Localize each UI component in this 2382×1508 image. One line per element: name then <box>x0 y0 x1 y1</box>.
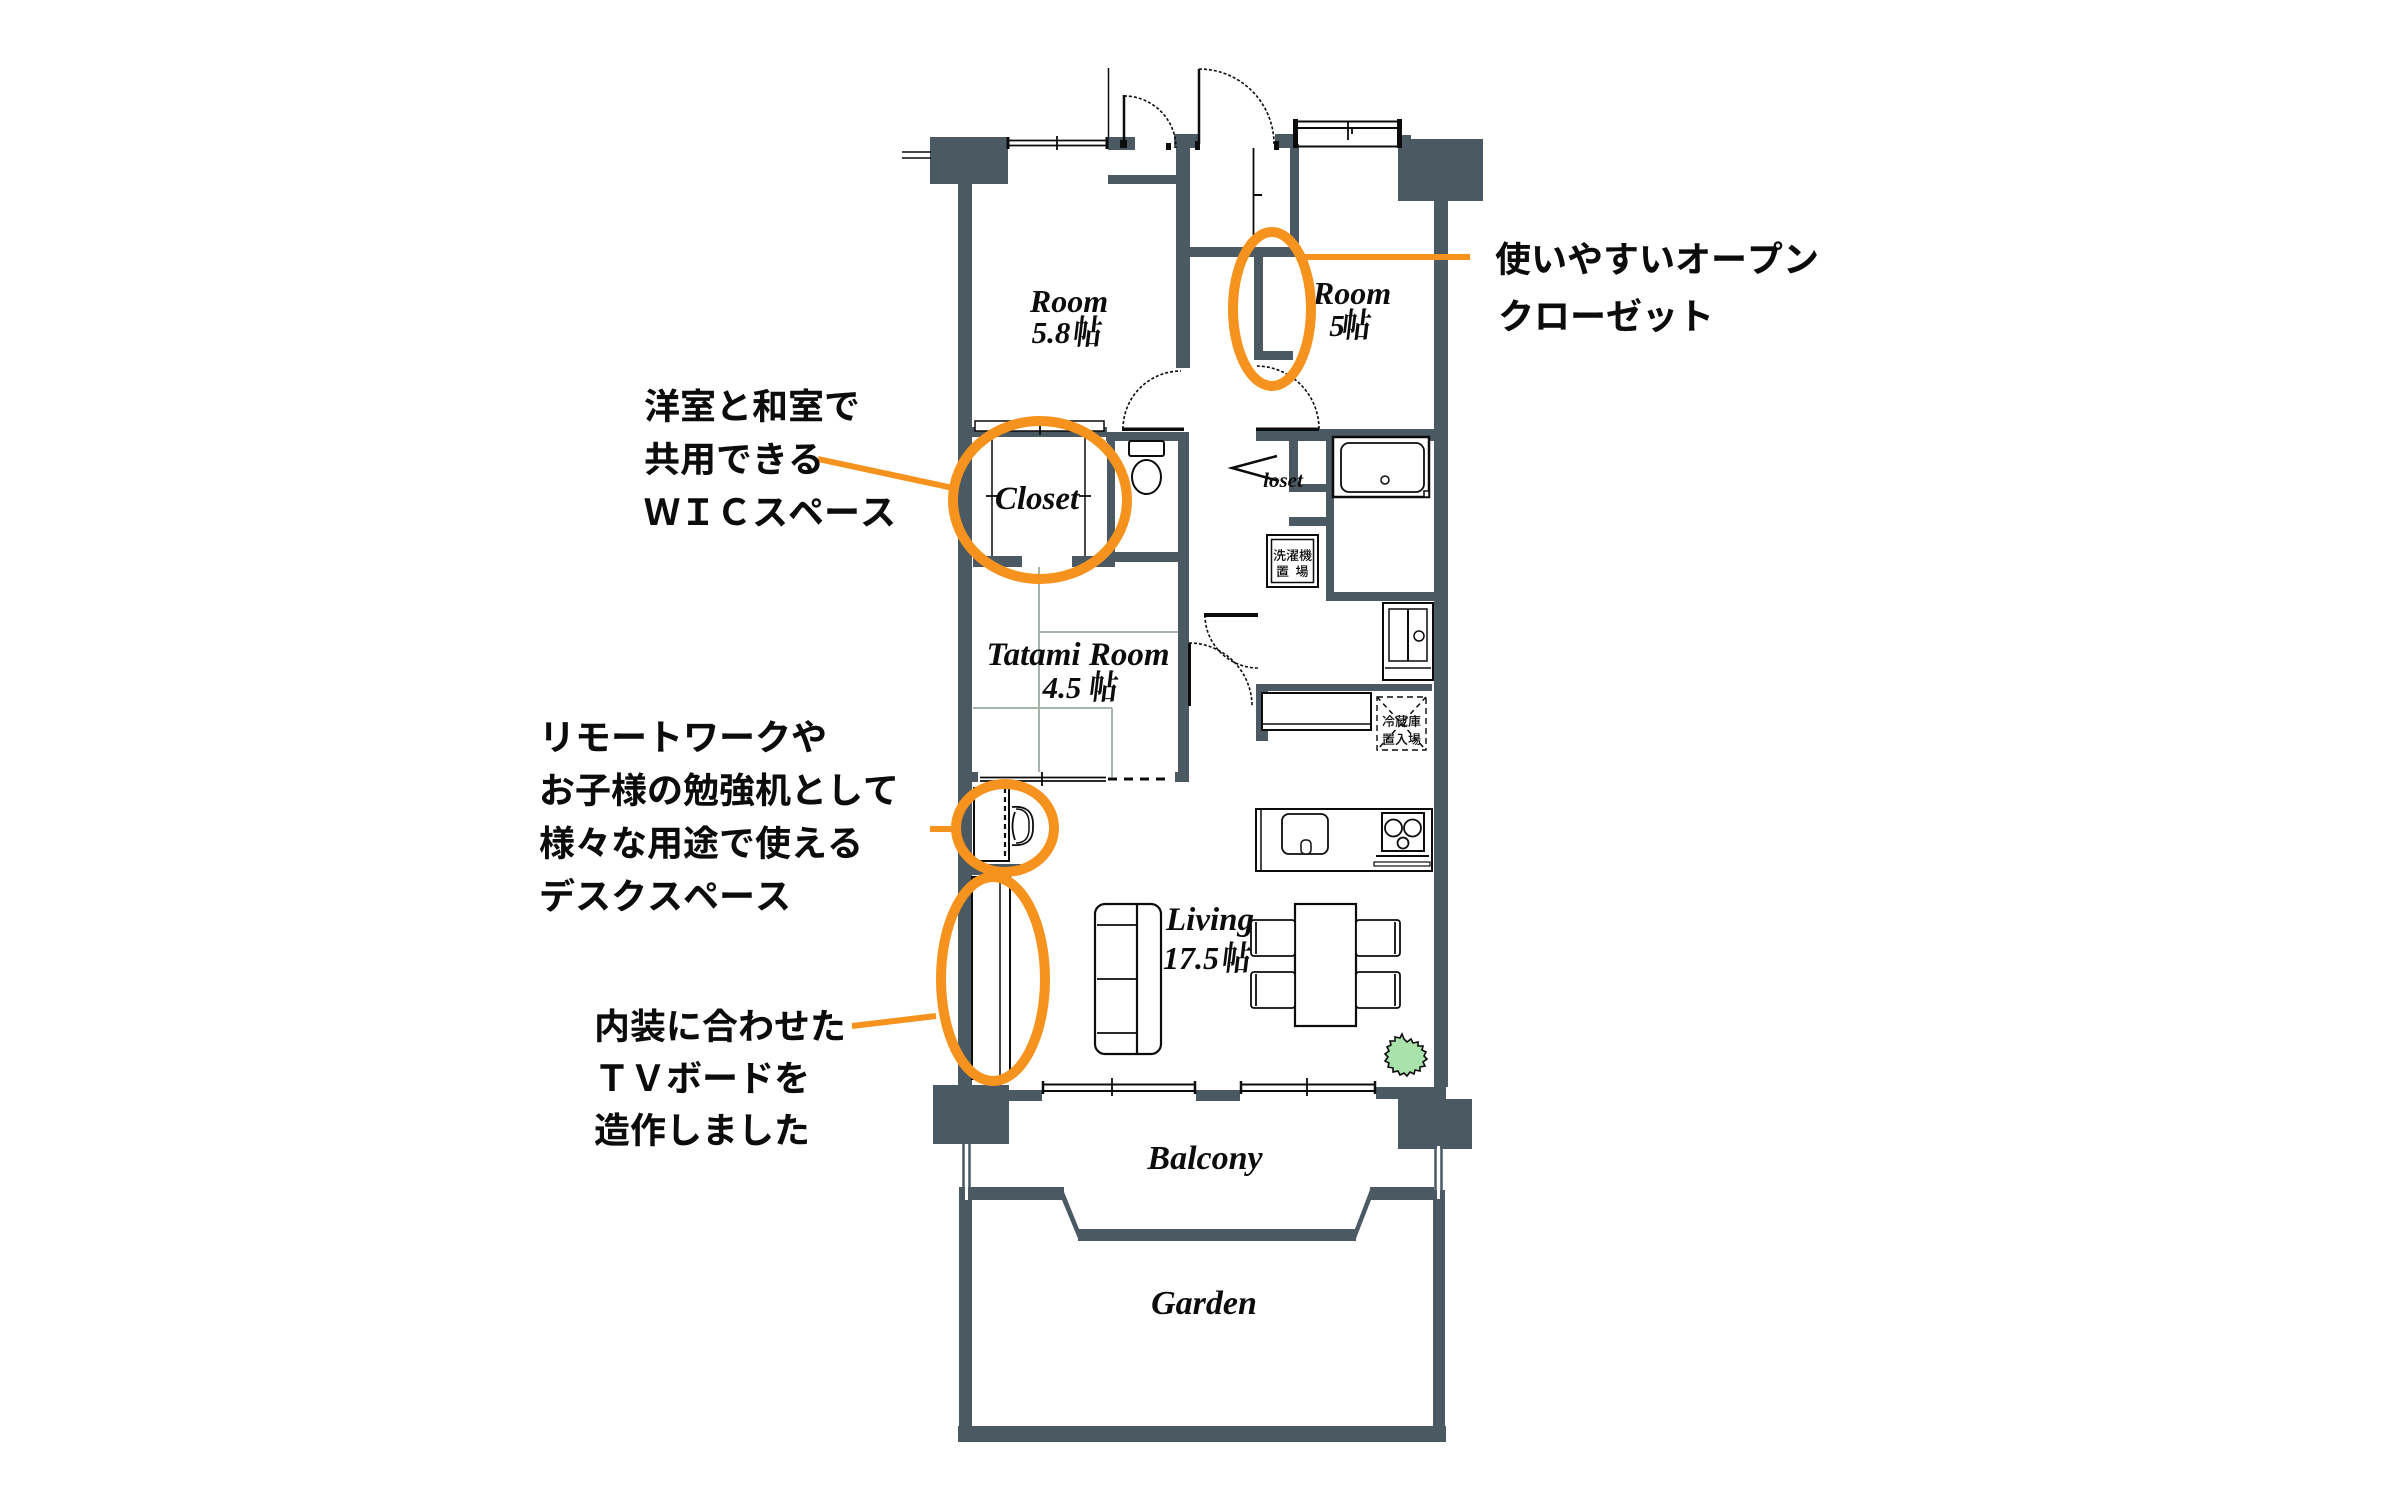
svg-text:Room: Room <box>1029 283 1108 319</box>
svg-text:loset: loset <box>1263 468 1304 492</box>
svg-text:5: 5 <box>1329 308 1345 343</box>
svg-text:17.5: 17.5 <box>1163 940 1219 976</box>
svg-text:Balcony: Balcony <box>1146 1140 1263 1177</box>
svg-text:Room: Room <box>1312 275 1391 311</box>
svg-text:4.5: 4.5 <box>1042 670 1082 705</box>
svg-text:Closet: Closet <box>995 481 1080 517</box>
svg-text:Tatami Room: Tatami Room <box>986 637 1169 673</box>
svg-text:5.8: 5.8 <box>1032 315 1071 350</box>
svg-text:Living: Living <box>1165 902 1254 938</box>
svg-text:Garden: Garden <box>1151 1285 1257 1322</box>
